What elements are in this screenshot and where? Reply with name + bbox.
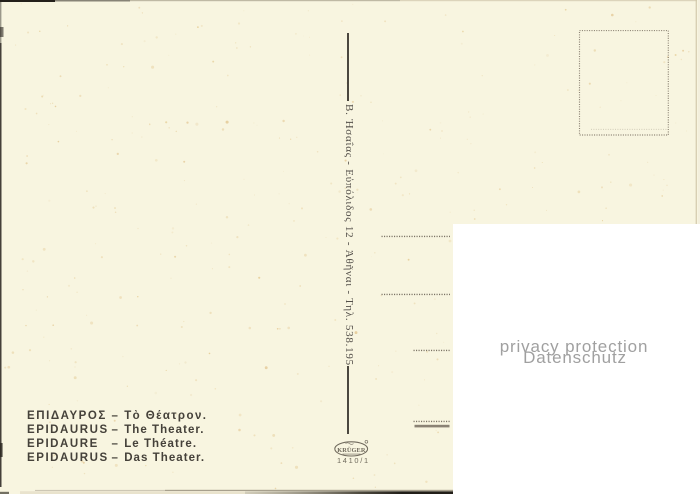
svg-text:KRÜGER: KRÜGER [337,447,366,454]
